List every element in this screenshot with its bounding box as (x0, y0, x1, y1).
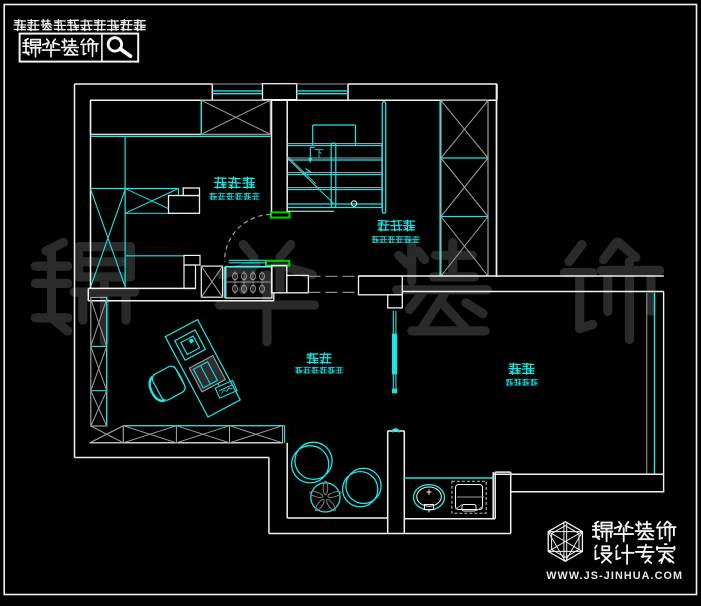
svg-text:WWW.JS-JINHUA.COM: WWW.JS-JINHUA.COM (546, 570, 683, 582)
